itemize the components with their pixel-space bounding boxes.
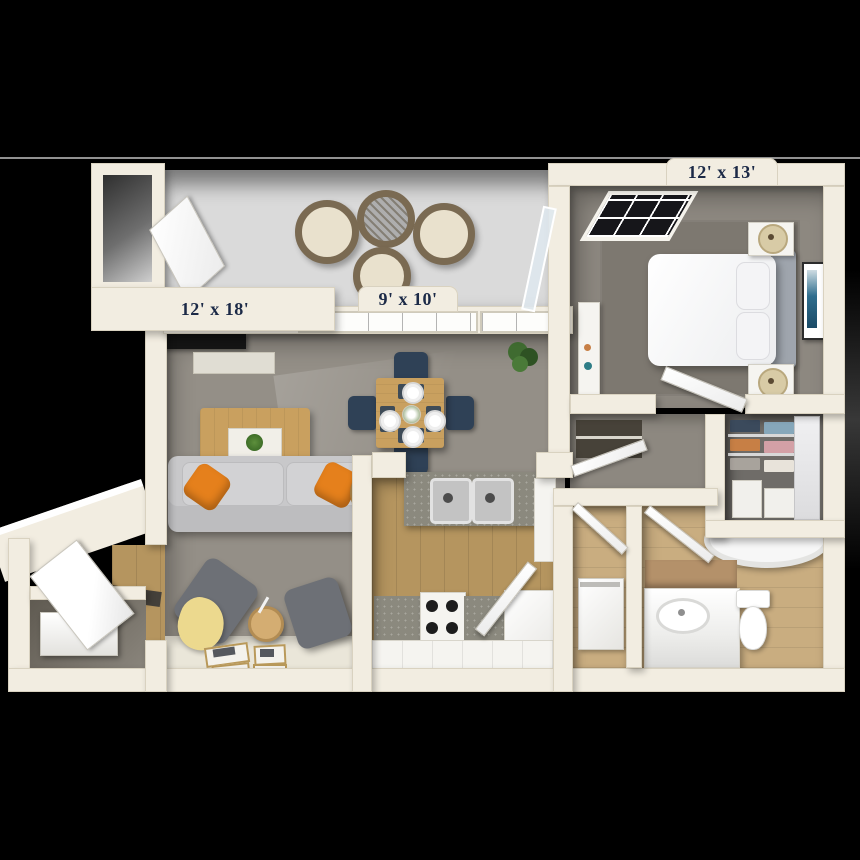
dining-chair-top [394,352,428,380]
dresser-decor-orange [584,344,591,351]
bed-pillow-bottom [736,312,770,360]
clothes-stack-5 [730,458,760,470]
kitchen-top-stub-left [372,452,406,478]
clothes-stack-1 [730,420,760,432]
bedroom-bottom-wall-right [745,394,845,414]
kitchen-counter-left-granite [374,596,420,640]
laundry-bath-wall [626,506,642,668]
bed-pillow-top [736,262,770,310]
sink-drain-left [443,493,453,503]
floor-plan-canvas: { "palette": { "background": "#000000", … [0,0,860,860]
plate-bottom [402,426,424,448]
right-outer-wall [823,186,845,692]
kitchen-laundry-wall [553,506,573,692]
closet-shelf-2 [728,453,796,456]
dining-centerpiece [402,405,421,424]
living-left-wall-upper [145,330,167,545]
stove-burner-2 [446,600,458,612]
tv [160,333,246,349]
plate-left [379,410,401,432]
patio-dimension-tab: 9' x 10' [358,286,458,312]
washer-control-panel [580,582,620,587]
living-left-wall-lower [145,640,167,692]
coffee-table-plant [246,434,263,451]
sink-drain-right [485,493,495,503]
clothes-stack-2 [764,422,794,434]
bottom-outer-wall [8,668,845,692]
floor-lamp [248,606,284,642]
sink-faucet [678,609,685,616]
linen-closet-shelf [576,436,642,439]
bathroom-sink [656,598,710,634]
patio-dimension-label: 9' x 10' [378,289,437,310]
stove-burner-3 [426,622,438,634]
lamp-bottom-finial [768,378,774,384]
bedroom-dimension-label: 12' x 13' [688,162,757,183]
toilet-bowl [739,606,767,650]
dining-chair-right [446,396,474,430]
floor-art-print-3 [260,649,274,657]
patio-chair-right [413,203,475,265]
closet-shelf-1 [728,434,796,437]
clothes-stack-6 [764,460,794,472]
dining-plant-leaf-3 [512,356,528,372]
storage-closet-interior [103,175,152,282]
plate-top [402,382,424,404]
closet-sliding-door [794,416,820,520]
kitchen-top-stub-right [536,452,573,478]
bedroom-bottom-wall-left [570,394,656,414]
bathroom-backsplash [645,560,737,588]
plate-right [424,410,446,432]
dining-chair-left [348,396,376,430]
stove-burner-4 [446,622,458,634]
lamp-top-finial [768,234,774,240]
kitchen-left-wall [352,455,372,692]
closet-bottom-wall [705,520,845,538]
bedroom-dimension-tab: 12' x 13' [666,158,778,186]
living-room-dimension-label: 12' x 18' [160,298,270,320]
dresser-decor-teal [584,362,592,370]
stove-burner-1 [426,600,438,612]
media-stand [193,352,275,374]
closet-drawer-unit-1 [732,480,762,518]
kitchen-counter-front [372,640,553,669]
bedroom-wall-art-print [807,270,817,328]
patio-chair-left [295,200,359,264]
clothes-stack-4 [764,441,794,453]
clothes-stack-3 [730,439,760,451]
patio-table [357,190,415,248]
washer-dryer [578,578,624,650]
right-edge-reflection [845,270,860,570]
closet-drawer-unit-2 [764,488,798,518]
